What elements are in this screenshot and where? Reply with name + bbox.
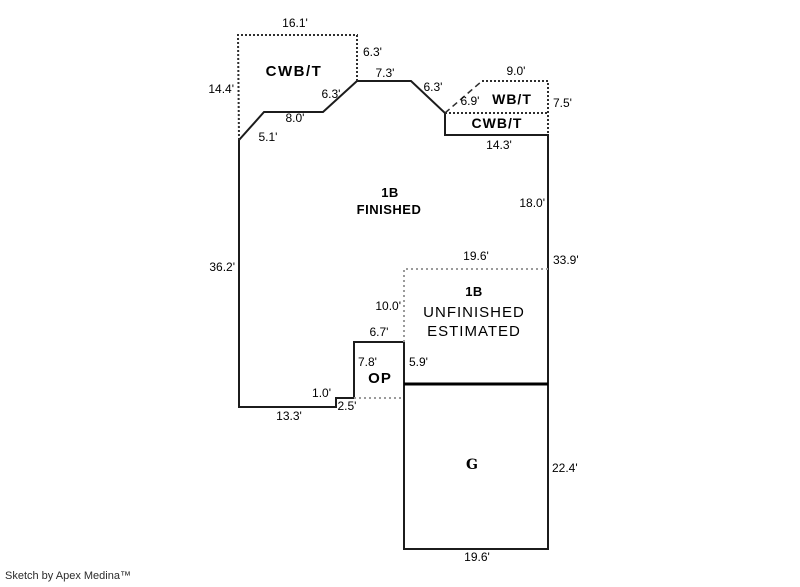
area-label-unfinished-line1: 1B xyxy=(465,284,483,299)
area-label-unfinished-line2: UNFINISHED xyxy=(423,304,525,321)
dim-cwbt-right-height: 6.3' xyxy=(363,45,382,59)
dim-bottom-left-width: 13.3' xyxy=(276,409,302,423)
dim-wbt-top-width: 9.0' xyxy=(507,64,526,78)
dim-left-main-height: 36.2' xyxy=(209,260,235,274)
dim-upper-left-diagonal: 6.3' xyxy=(322,87,341,101)
area-label-cwbt-right: CWB/T xyxy=(472,115,523,131)
dim-right-upper-height: 18.0' xyxy=(519,196,545,210)
dim-cwbt-top-width: 16.1' xyxy=(282,16,308,30)
dim-wbt-right-height: 7.5' xyxy=(553,96,572,110)
dim-cwbt-right-width: 14.3' xyxy=(486,138,512,152)
dim-upper-right-diagonal: 6.3' xyxy=(424,80,443,94)
dim-step-up: 1.0' xyxy=(312,386,331,400)
dim-cwbt-left-height: 14.4' xyxy=(208,82,234,96)
area-label-finished-line1: 1B xyxy=(381,185,399,200)
floorplan-sketch-page: 16.1' 6.3' 14.4' 7.3' 6.3' 8.0' 5.1' 6.3… xyxy=(0,0,800,587)
dim-garage-right-height: 22.4' xyxy=(552,461,578,475)
sketch-credit: Sketch by Apex Medina™ xyxy=(5,570,131,582)
dim-unfinished-top-width: 19.6' xyxy=(463,249,489,263)
dim-left-step-width: 8.0' xyxy=(286,111,305,125)
dim-garage-bottom-width: 19.6' xyxy=(464,550,490,564)
area-label-cwbt-upper: CWB/T xyxy=(266,63,323,80)
dim-lower-left-diagonal: 5.1' xyxy=(259,130,278,144)
dim-unfinished-left-height: 10.0' xyxy=(375,299,401,313)
floorplan-sketch: 16.1' 6.3' 14.4' 7.3' 6.3' 8.0' 5.1' 6.3… xyxy=(0,0,800,587)
dim-op-top-width: 6.7' xyxy=(370,325,389,339)
area-label-op: OP xyxy=(368,370,392,387)
dim-wbt-diagonal: 6.9' xyxy=(461,94,480,108)
dim-ridge-top-width: 7.3' xyxy=(376,66,395,80)
dim-op-left-height: 7.8' xyxy=(358,355,377,369)
area-label-wbt: WB/T xyxy=(492,91,532,107)
area-label-garage: G xyxy=(466,457,478,473)
dim-right-lower-height: 33.9' xyxy=(553,253,579,267)
area-label-unfinished-line3: ESTIMATED xyxy=(427,323,521,340)
dim-step-right: 2.5' xyxy=(338,399,357,413)
area-label-finished-line2: FINISHED xyxy=(357,202,422,217)
dim-op-right-height: 5.9' xyxy=(409,355,428,369)
